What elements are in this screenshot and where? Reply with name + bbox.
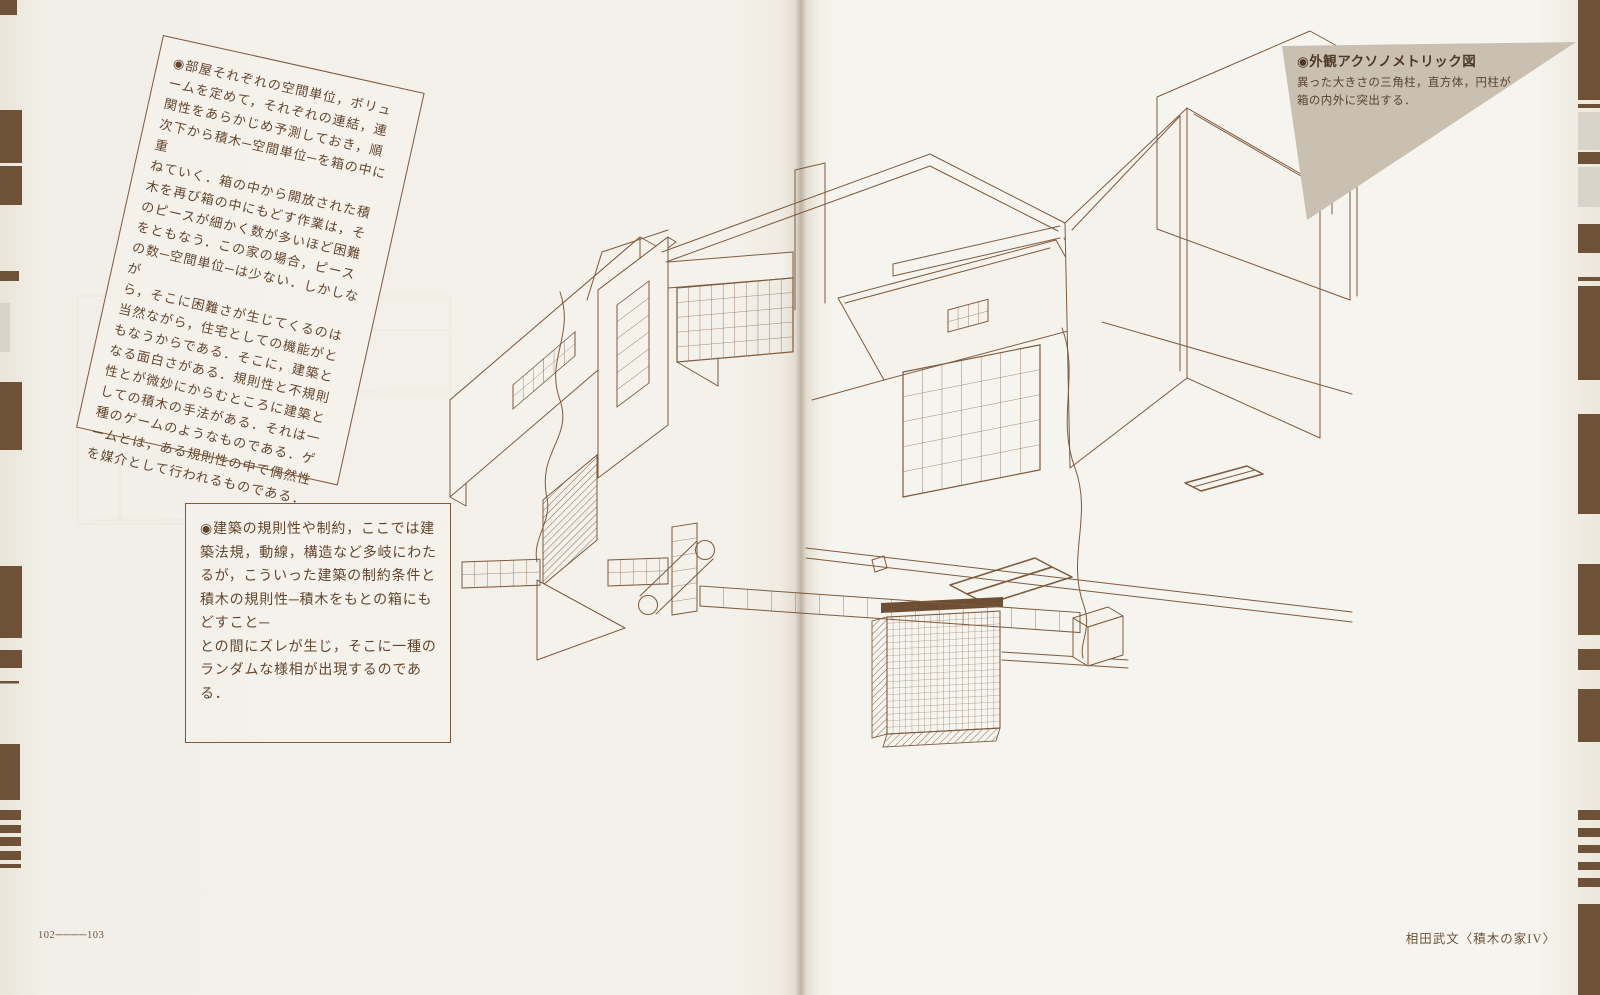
credit-caption: 相田武文〈積木の家IV〉: [1406, 928, 1556, 947]
page-folio: 102────103: [38, 930, 104, 941]
glass-grid-wall-right: [903, 345, 1040, 497]
hatched-prism: [537, 455, 625, 660]
book-spread-page: ◉部屋それぞれの空間単位，ボリュ ームを定めて，それぞれの連結，連 関性をあらか…: [0, 0, 1600, 995]
ladder-window-wall: [587, 230, 676, 478]
caption-title: ◉外観アクソノメトリック図: [1297, 50, 1537, 70]
page-edge-marks-left: [0, 0, 22, 868]
glass-grid-wall-upper: [668, 252, 793, 386]
boxed-commentary-note: ◉建築の規則性や制約，ここでは建 築法規，動線，構造など多岐にわた るが，こうい…: [185, 503, 451, 743]
page-edge-marks-right: [1578, 0, 1600, 995]
